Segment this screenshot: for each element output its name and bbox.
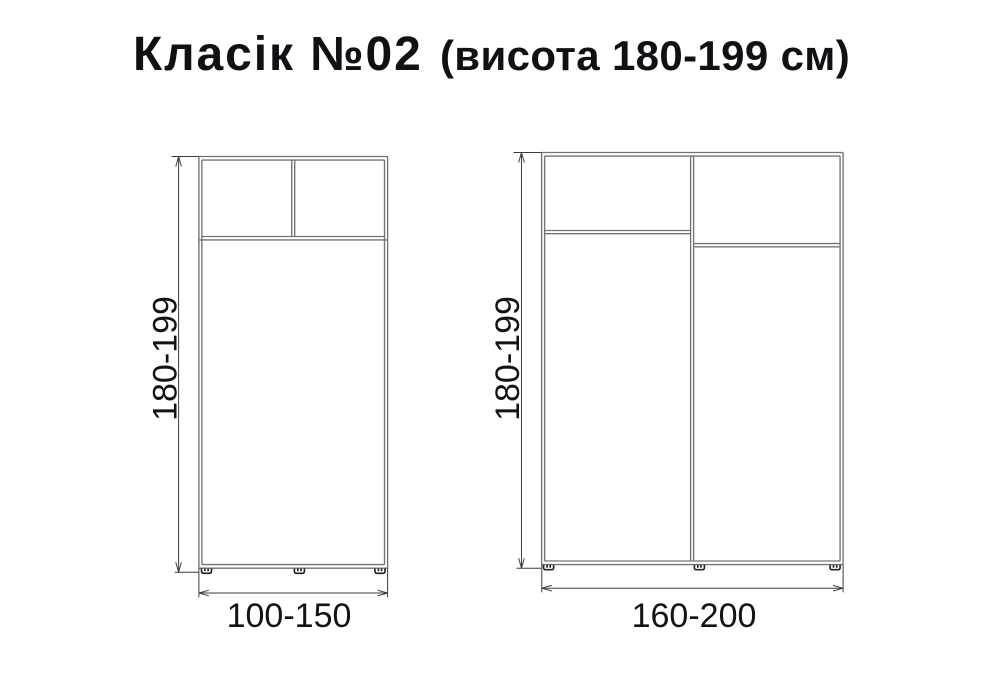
svg-text:180-199: 180-199 [147,296,185,421]
svg-text:100-150: 100-150 [227,597,352,635]
svg-text:160-200: 160-200 [632,597,757,635]
svg-text:180-199: 180-199 [489,296,527,421]
